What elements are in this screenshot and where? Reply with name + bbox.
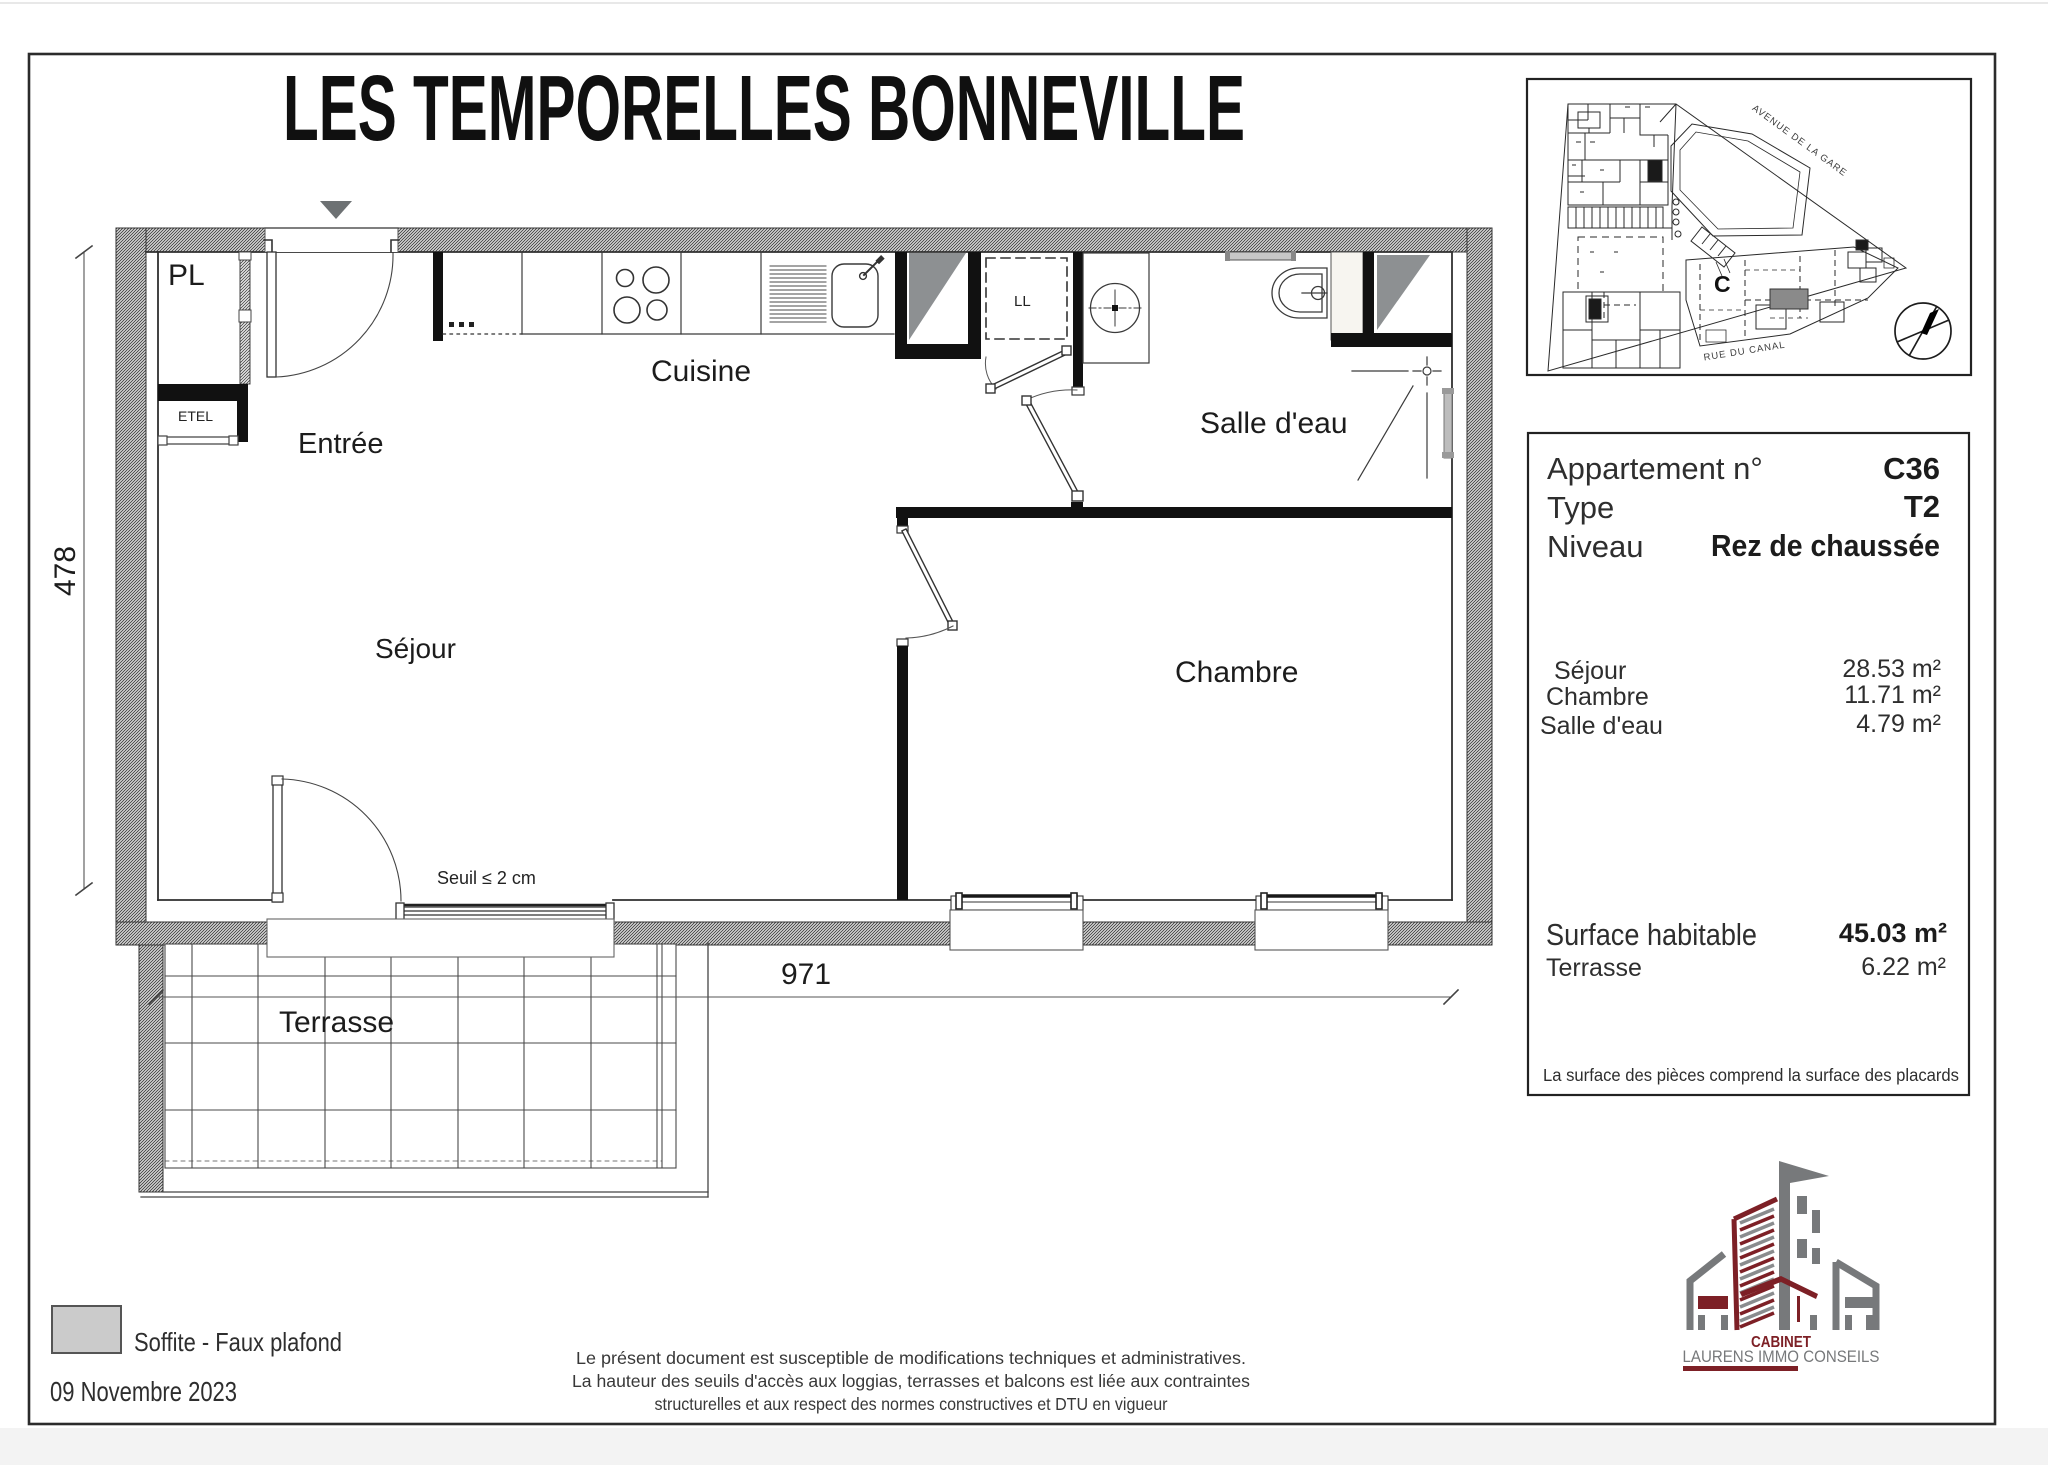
svg-text:La hauteur des seuils d'accès: La hauteur des seuils d'accès aux loggia… bbox=[572, 1371, 1250, 1391]
svg-text:Salle d'eau: Salle d'eau bbox=[1200, 407, 1348, 440]
svg-text:Entrée: Entrée bbox=[298, 428, 383, 460]
svg-text:Séjour: Séjour bbox=[375, 633, 456, 664]
svg-text:478: 478 bbox=[49, 546, 82, 596]
svg-text:Soffite - Faux plafond: Soffite - Faux plafond bbox=[134, 1327, 342, 1357]
svg-text:Le présent document est suscep: Le présent document est susceptible de m… bbox=[576, 1348, 1246, 1368]
svg-text:11.71 m²: 11.71 m² bbox=[1844, 681, 1941, 709]
svg-text:C: C bbox=[1714, 271, 1731, 297]
svg-text:Chambre: Chambre bbox=[1175, 656, 1298, 689]
svg-text:ETEL: ETEL bbox=[178, 408, 213, 424]
svg-text:45.03 m²: 45.03 m² bbox=[1839, 918, 1947, 948]
svg-text:Rez de chaussée: Rez de chaussée bbox=[1711, 528, 1940, 563]
svg-text:Chambre: Chambre bbox=[1546, 683, 1649, 711]
svg-text:PL: PL bbox=[168, 259, 205, 292]
svg-text:LES TEMPORELLES BONNEVILLE: LES TEMPORELLES BONNEVILLE bbox=[283, 56, 1245, 160]
svg-text:Salle d'eau: Salle d'eau bbox=[1540, 712, 1663, 740]
svg-text:LL: LL bbox=[1014, 293, 1031, 310]
svg-text:09 Novembre 2023: 09 Novembre 2023 bbox=[50, 1376, 237, 1407]
svg-text:Séjour: Séjour bbox=[1554, 657, 1626, 685]
svg-text:Appartement n°: Appartement n° bbox=[1547, 451, 1763, 486]
svg-text:T2: T2 bbox=[1904, 489, 1940, 524]
svg-text:Type: Type bbox=[1547, 490, 1614, 525]
svg-text:Terrasse: Terrasse bbox=[1546, 954, 1642, 982]
svg-text:La surface des pièces comprend: La surface des pièces comprend la surfac… bbox=[1543, 1065, 1959, 1085]
svg-text:structurelles et aux respect d: structurelles et aux respect des normes … bbox=[655, 1394, 1168, 1414]
svg-text:Cuisine: Cuisine bbox=[651, 355, 751, 388]
svg-text:6.22 m²: 6.22 m² bbox=[1861, 953, 1946, 981]
svg-text:Surface habitable: Surface habitable bbox=[1546, 917, 1757, 952]
svg-text:LAURENS IMMO CONSEILS: LAURENS IMMO CONSEILS bbox=[1683, 1348, 1880, 1366]
svg-text:Niveau: Niveau bbox=[1547, 529, 1644, 564]
svg-text:C36: C36 bbox=[1883, 451, 1940, 486]
svg-text:Seuil ≤ 2 cm: Seuil ≤ 2 cm bbox=[437, 868, 536, 888]
svg-text:971: 971 bbox=[781, 958, 831, 991]
svg-text:Terrasse: Terrasse bbox=[279, 1006, 394, 1039]
svg-text:4.79 m²: 4.79 m² bbox=[1856, 710, 1941, 738]
svg-text:28.53 m²: 28.53 m² bbox=[1842, 655, 1941, 683]
